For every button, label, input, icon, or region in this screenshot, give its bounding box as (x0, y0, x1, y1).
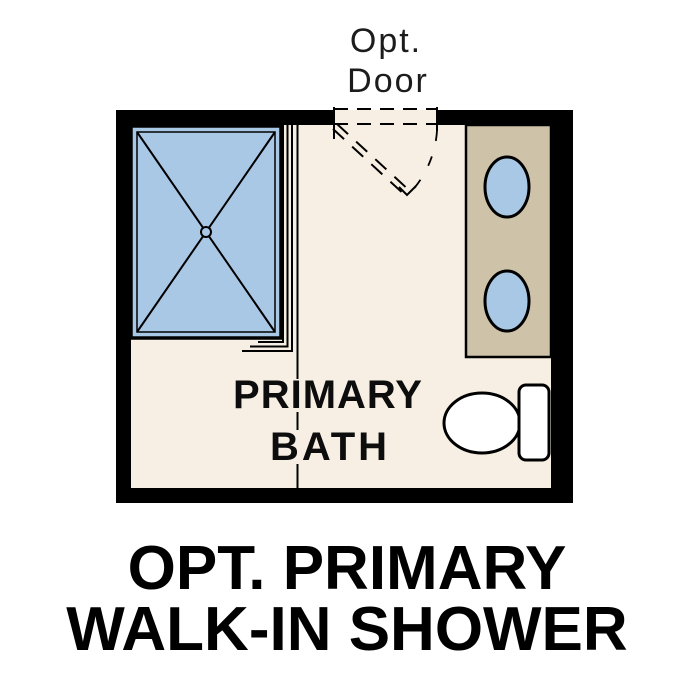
caption-line2: WALK-IN SHOWER (66, 595, 627, 664)
shower-drain-icon (201, 227, 211, 237)
opt-door-label-line2: Door (347, 62, 429, 100)
wall-bottom (116, 488, 573, 503)
room-label-line1: PRIMARY (233, 373, 423, 417)
sink-top-icon (485, 157, 529, 217)
toilet-bowl (444, 393, 520, 453)
toilet-tank (519, 385, 549, 460)
walk-in-shower (131, 126, 281, 338)
wall-right (551, 110, 573, 503)
wall-left (116, 110, 131, 503)
sink-bottom-icon (485, 271, 529, 331)
caption-line1: OPT. PRIMARY (128, 534, 567, 603)
floorplan-svg: Opt. Door PRIMARY BATH OPT. PRIMARY WALK… (0, 0, 687, 687)
vanity (466, 125, 551, 357)
wall-top-left (116, 110, 334, 125)
floorplan-canvas: Opt. Door PRIMARY BATH OPT. PRIMARY WALK… (0, 0, 687, 687)
opt-door-label-line1: Opt. (350, 22, 422, 60)
room-label-line2: BATH (270, 425, 390, 469)
